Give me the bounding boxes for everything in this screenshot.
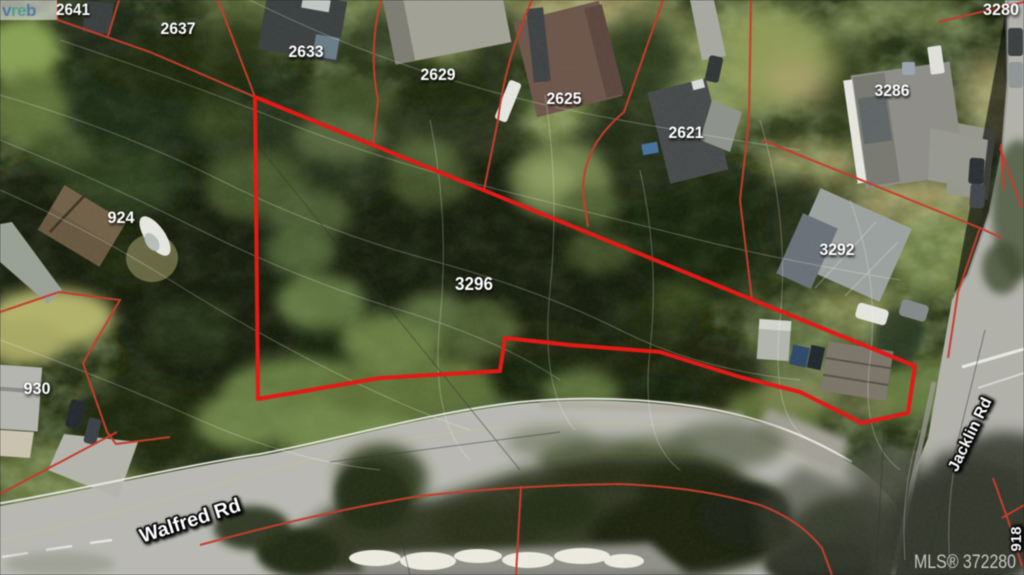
svg-text:MLS® 372280: MLS® 372280: [914, 552, 1016, 573]
svg-text:2637: 2637: [161, 19, 196, 38]
svg-text:3280: 3280: [983, 0, 1019, 19]
svg-text:2625: 2625: [547, 89, 582, 108]
svg-text:924: 924: [108, 208, 136, 227]
svg-text:2641: 2641: [56, 0, 90, 19]
svg-text:3286: 3286: [875, 81, 910, 100]
svg-text:vreb: vreb: [2, 1, 36, 20]
svg-text:918: 918: [1008, 526, 1024, 551]
svg-text:2629: 2629: [421, 65, 456, 84]
svg-text:2621: 2621: [669, 123, 704, 142]
svg-text:930: 930: [24, 379, 51, 398]
svg-text:3292: 3292: [820, 240, 855, 259]
svg-text:3296: 3296: [455, 274, 493, 294]
svg-text:2633: 2633: [289, 42, 324, 61]
